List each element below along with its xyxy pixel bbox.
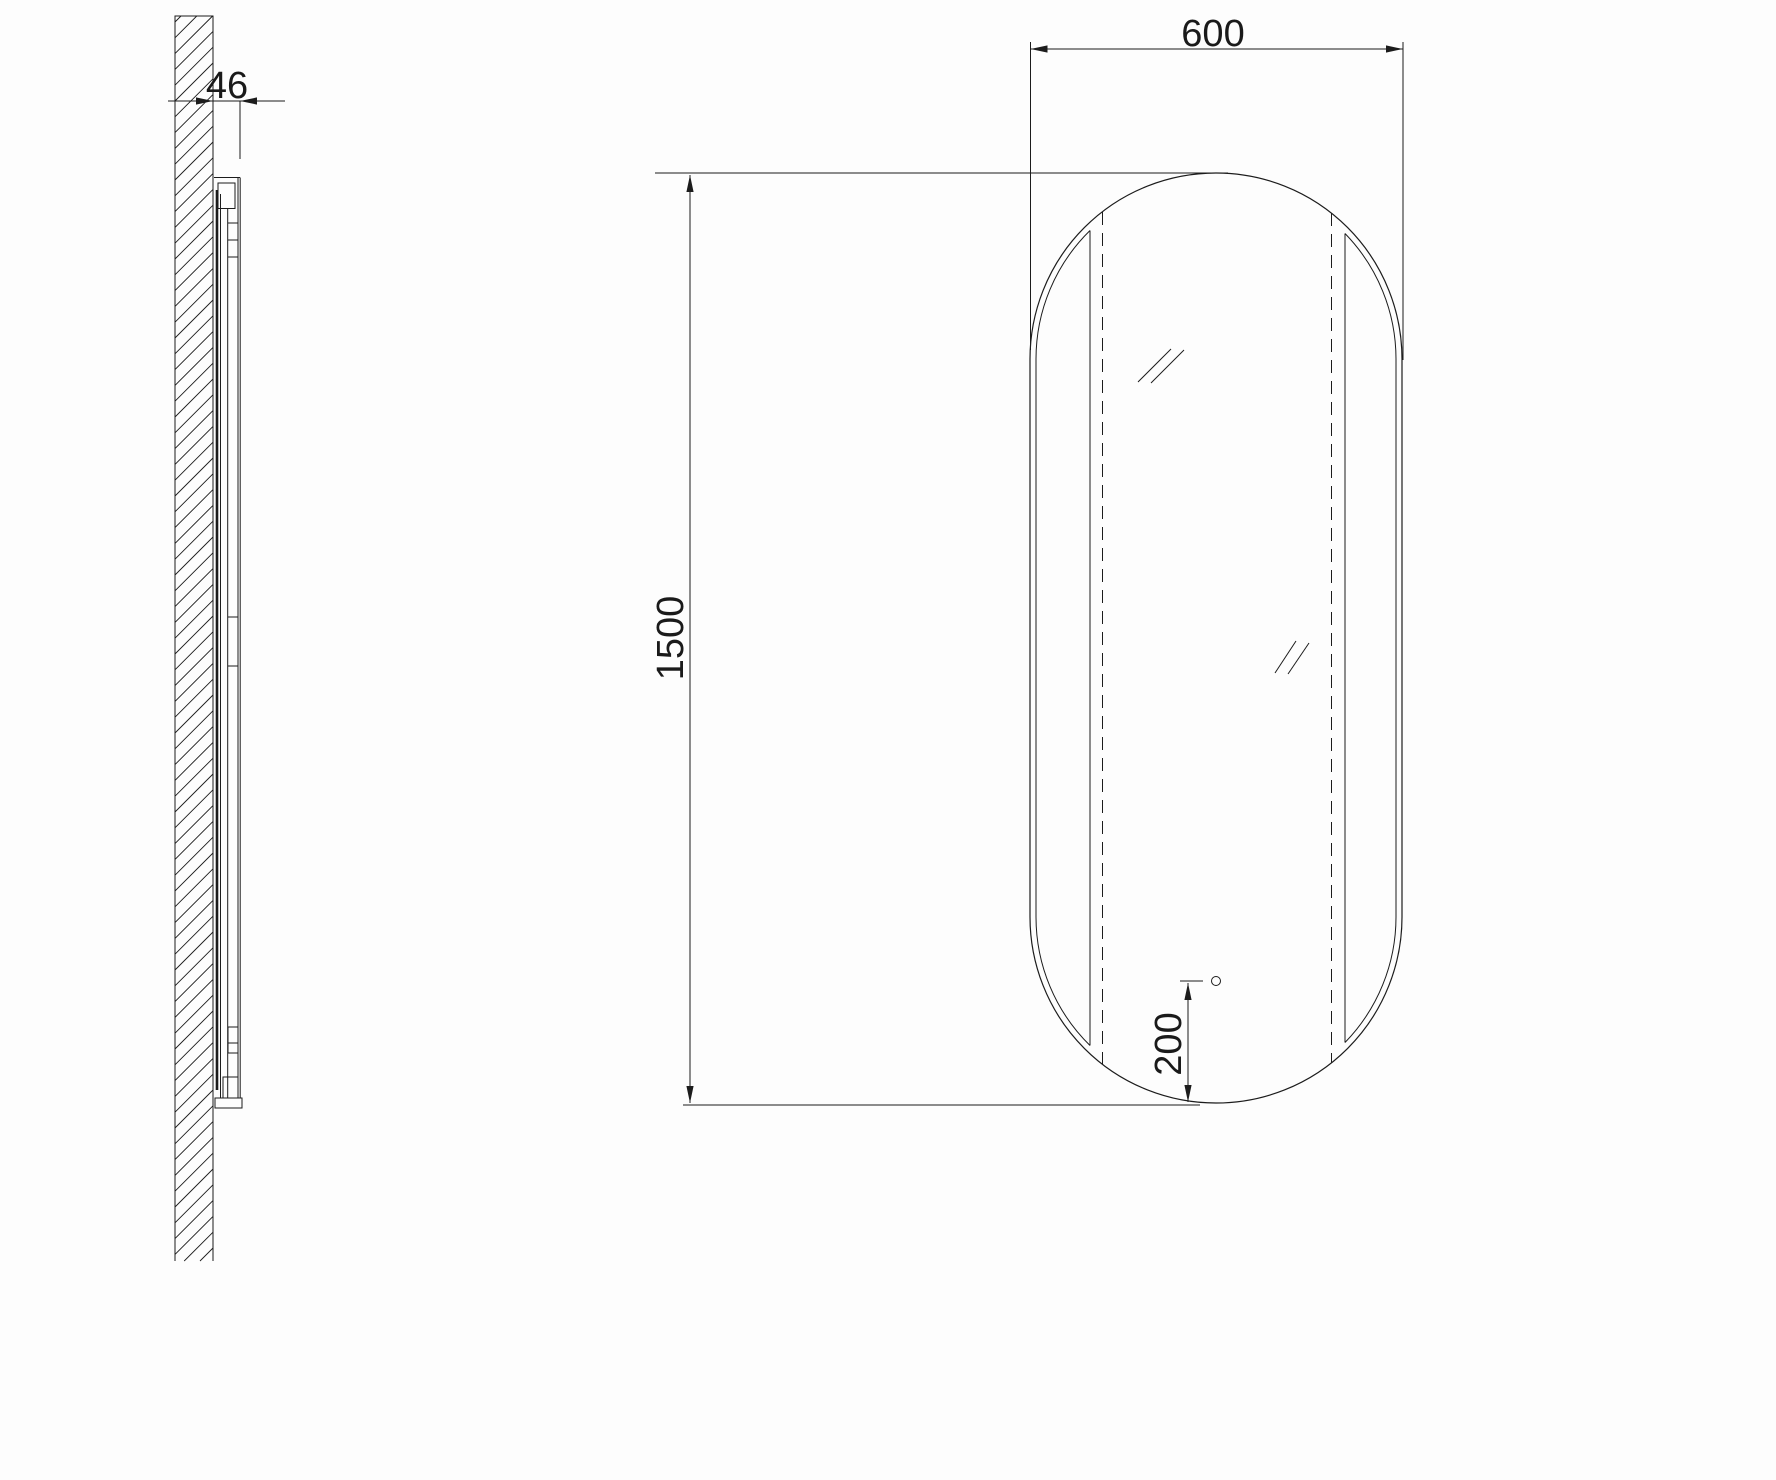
width-dimension-label: 600	[1181, 13, 1244, 55]
front-view: 600 1500 200	[650, 13, 1403, 1105]
arrowhead	[686, 175, 693, 192]
glass-hatch-icon	[1138, 349, 1184, 383]
sensor-offset-dimension-label: 200	[1148, 1012, 1190, 1075]
wall-hatch	[175, 16, 213, 1261]
mirror-outline	[1030, 173, 1402, 1103]
arrowhead	[1386, 45, 1403, 52]
mirror-inner-edge-left	[1036, 231, 1090, 1046]
height-dimension: 1500	[650, 173, 1228, 1105]
mirror-inner-edge-right	[1345, 234, 1396, 1043]
profile-bottom-plate	[215, 1098, 242, 1108]
arrowhead	[1031, 45, 1048, 52]
drawing-lines: 46	[168, 13, 1403, 1261]
technical-drawing-canvas: 46	[0, 0, 1776, 1480]
arrowhead	[1184, 1085, 1191, 1102]
touch-sensor-circle	[1212, 977, 1221, 986]
arrowhead	[1184, 983, 1191, 1000]
width-dimension: 600	[1031, 13, 1404, 360]
glass-hatch-icon	[1275, 641, 1309, 674]
depth-dimension-label: 46	[206, 65, 248, 107]
mounting-bracket-bottom	[228, 1027, 238, 1053]
mirror-side-profile	[214, 178, 242, 1109]
height-dimension-label: 1500	[650, 596, 692, 681]
arrowhead	[686, 1086, 693, 1103]
wall-section	[175, 16, 213, 1261]
sensor-offset-dimension: 200	[1148, 981, 1203, 1102]
side-view: 46	[168, 16, 285, 1261]
wall-outline	[175, 16, 213, 1261]
profile-foot	[223, 1077, 238, 1098]
depth-dimension: 46	[168, 65, 285, 159]
mirror-technical-drawing: 46	[0, 0, 1776, 1480]
